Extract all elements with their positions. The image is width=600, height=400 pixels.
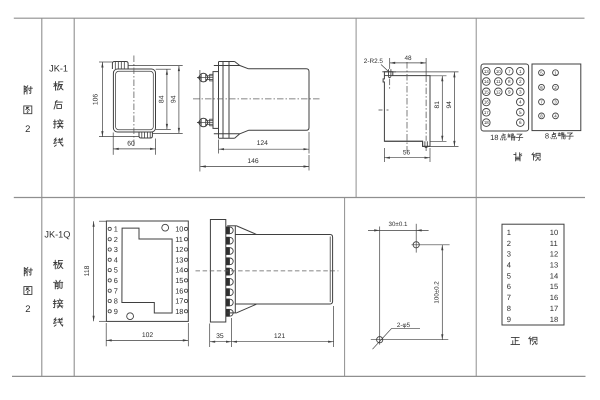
svg-text:84: 84 xyxy=(158,95,165,103)
svg-text:7: 7 xyxy=(114,286,118,295)
svg-text:94: 94 xyxy=(170,95,177,103)
svg-text:124: 124 xyxy=(257,140,269,147)
svg-text:11: 11 xyxy=(175,235,183,244)
svg-text:1: 1 xyxy=(114,225,118,234)
svg-text:7: 7 xyxy=(507,293,511,302)
svg-text:8: 8 xyxy=(545,132,549,141)
svg-text:30±0.1: 30±0.1 xyxy=(389,221,408,228)
svg-text:2-R2.5: 2-R2.5 xyxy=(364,58,384,65)
svg-text:8: 8 xyxy=(508,79,511,84)
svg-text:11: 11 xyxy=(496,79,501,84)
svg-text:2-φ5: 2-φ5 xyxy=(397,322,411,329)
svg-text:118: 118 xyxy=(84,265,91,276)
svg-text:16: 16 xyxy=(484,100,489,105)
svg-text:6: 6 xyxy=(519,120,522,125)
svg-text:18: 18 xyxy=(490,133,498,142)
svg-text:17: 17 xyxy=(550,304,558,313)
svg-text:9: 9 xyxy=(507,315,511,324)
svg-text:1: 1 xyxy=(507,228,511,237)
svg-text:8: 8 xyxy=(114,297,118,306)
svg-text:5: 5 xyxy=(114,266,118,275)
svg-text:3: 3 xyxy=(114,245,118,254)
svg-text:3: 3 xyxy=(507,250,511,259)
svg-text:JK-1: JK-1 xyxy=(49,64,68,74)
svg-text:18: 18 xyxy=(175,307,183,316)
svg-text:2: 2 xyxy=(507,239,511,248)
svg-text:146: 146 xyxy=(247,158,259,165)
svg-text:121: 121 xyxy=(274,333,286,340)
svg-text:4: 4 xyxy=(114,255,118,264)
svg-text:1: 1 xyxy=(519,69,522,74)
svg-text:14: 14 xyxy=(484,79,489,84)
svg-text:14: 14 xyxy=(550,271,558,280)
svg-text:2: 2 xyxy=(519,79,522,84)
svg-text:9: 9 xyxy=(114,307,118,316)
svg-text:13: 13 xyxy=(550,261,558,270)
svg-text:16: 16 xyxy=(175,286,183,295)
svg-text:2: 2 xyxy=(114,235,118,244)
svg-text:60: 60 xyxy=(127,140,135,147)
svg-text:18: 18 xyxy=(484,120,489,125)
svg-text:JK-1Q: JK-1Q xyxy=(44,230,70,240)
svg-text:94: 94 xyxy=(446,101,453,109)
svg-text:8: 8 xyxy=(507,304,511,313)
svg-text:16: 16 xyxy=(550,293,558,302)
svg-text:4: 4 xyxy=(519,100,522,105)
svg-text:14: 14 xyxy=(175,266,183,275)
svg-text:17: 17 xyxy=(484,110,489,115)
svg-text:100±0.2: 100±0.2 xyxy=(434,281,441,304)
svg-text:56: 56 xyxy=(403,149,411,156)
svg-text:10: 10 xyxy=(175,225,183,234)
svg-text:5: 5 xyxy=(519,110,522,115)
svg-text:17: 17 xyxy=(175,297,183,306)
svg-text:5: 5 xyxy=(507,271,511,280)
svg-text:6: 6 xyxy=(114,276,118,285)
svg-text:2: 2 xyxy=(25,304,30,315)
svg-text:2: 2 xyxy=(25,124,30,135)
svg-text:6: 6 xyxy=(507,282,511,291)
svg-text:12: 12 xyxy=(496,89,501,94)
svg-text:13: 13 xyxy=(175,255,183,264)
svg-text:4: 4 xyxy=(507,261,511,270)
svg-text:81: 81 xyxy=(434,101,441,109)
svg-text:48: 48 xyxy=(404,55,412,62)
svg-text:106: 106 xyxy=(93,94,100,106)
svg-text:3: 3 xyxy=(519,89,522,94)
svg-text:12: 12 xyxy=(175,245,183,254)
svg-text:9: 9 xyxy=(508,89,511,94)
svg-text:15: 15 xyxy=(484,89,489,94)
svg-text:10: 10 xyxy=(496,69,501,74)
svg-text:10: 10 xyxy=(550,228,558,237)
svg-text:102: 102 xyxy=(142,332,154,339)
svg-text:7: 7 xyxy=(508,69,511,74)
svg-text:11: 11 xyxy=(550,239,558,248)
svg-text:13: 13 xyxy=(484,69,489,74)
svg-text:18: 18 xyxy=(550,315,558,324)
svg-text:12: 12 xyxy=(550,250,558,259)
svg-text:15: 15 xyxy=(550,282,558,291)
svg-text:35: 35 xyxy=(216,333,224,340)
svg-text:15: 15 xyxy=(175,276,183,285)
